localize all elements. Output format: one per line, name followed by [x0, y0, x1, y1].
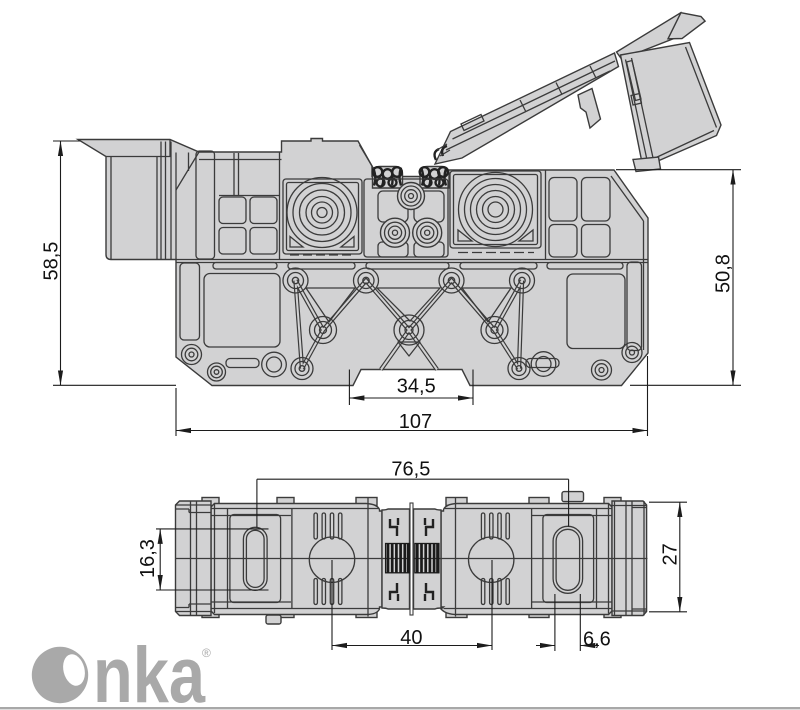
svg-text:34,5: 34,5: [397, 376, 436, 398]
svg-text:40: 40: [400, 627, 422, 649]
svg-text:58,5: 58,5: [41, 242, 63, 281]
svg-text:16,3: 16,3: [137, 539, 159, 578]
svg-text:®: ®: [202, 646, 211, 660]
svg-text:6,6: 6,6: [583, 629, 611, 651]
svg-text:50,8: 50,8: [713, 254, 735, 293]
svg-text:27: 27: [660, 543, 682, 565]
svg-text:nka: nka: [93, 630, 206, 710]
svg-text:76,5: 76,5: [391, 459, 430, 481]
svg-text:107: 107: [399, 411, 432, 433]
